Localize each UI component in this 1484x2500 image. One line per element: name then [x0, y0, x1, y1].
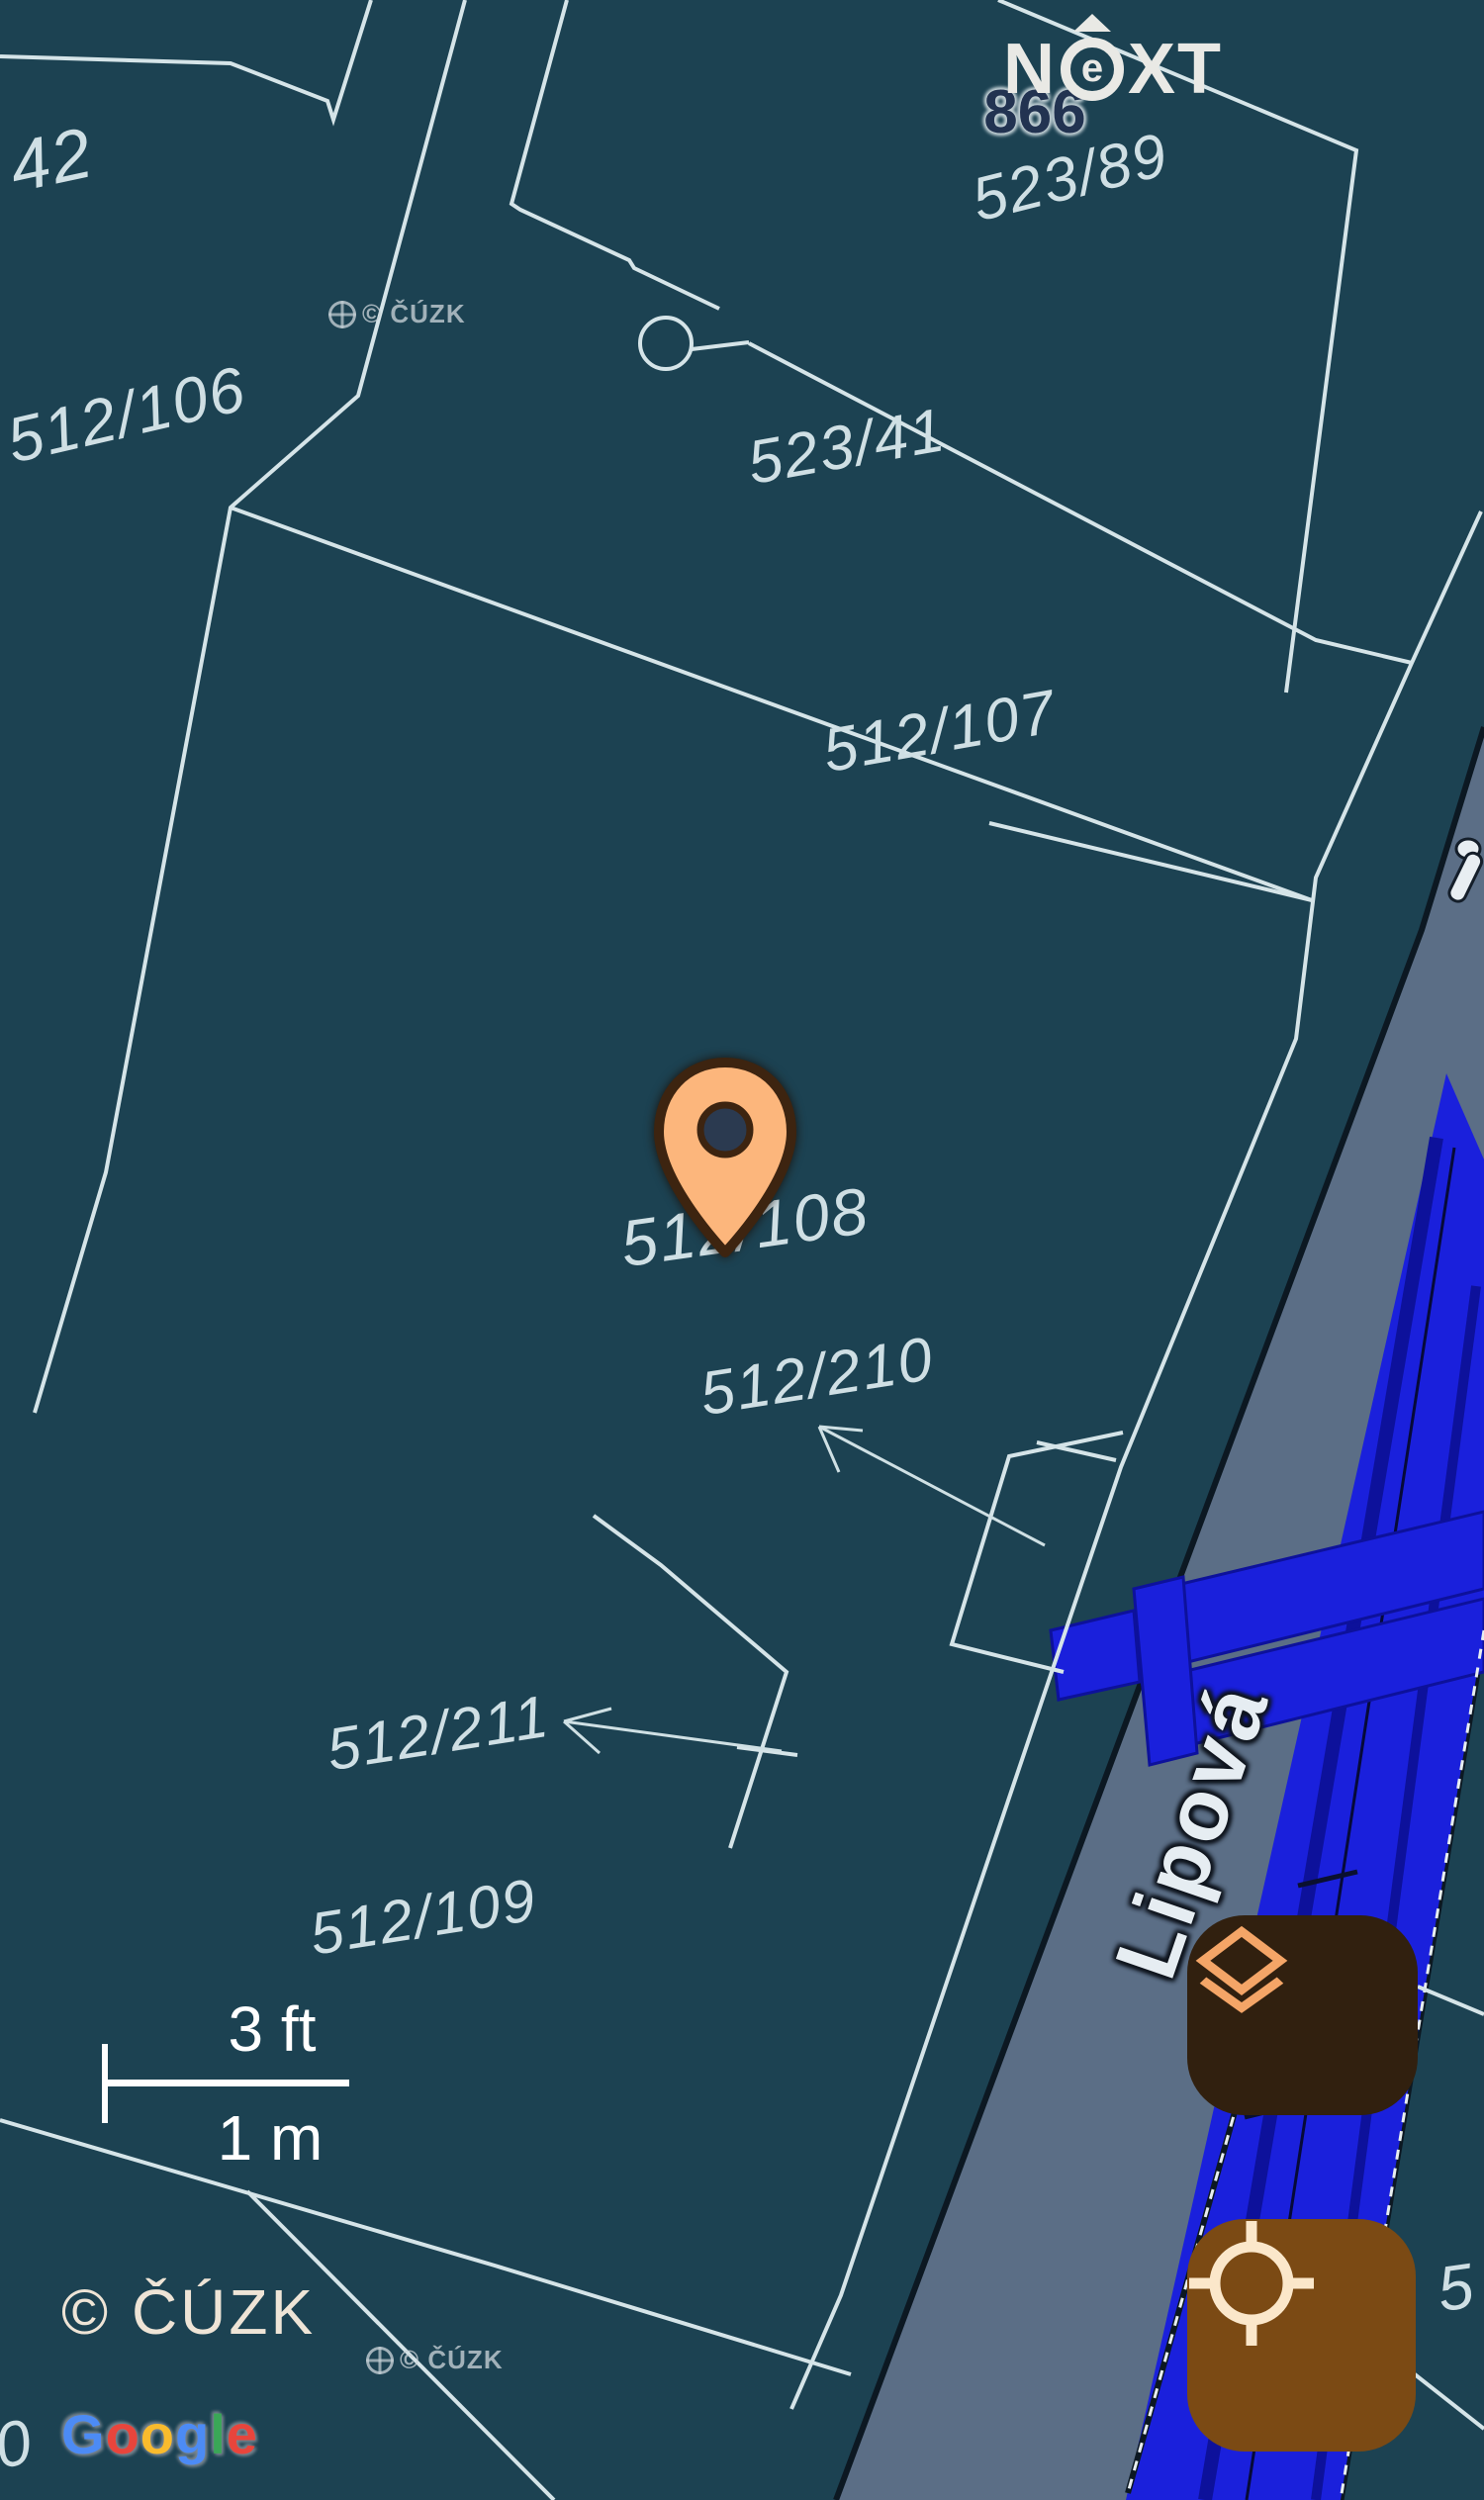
- logo-letters-xt: XT: [1128, 34, 1223, 105]
- well-circle-symbol: [640, 318, 692, 369]
- leader-arrows: [564, 1427, 1045, 1753]
- cuzk-watermark: © ČÚZK: [328, 299, 466, 329]
- logo-letter-e: e: [1081, 48, 1103, 88]
- logo-e-ring: e: [1061, 38, 1124, 101]
- globe-icon: [366, 2347, 394, 2374]
- google-letter: o: [140, 2403, 175, 2465]
- layers-button[interactable]: [1187, 1915, 1418, 2115]
- cuzk-watermark: © ČÚZK: [366, 2345, 504, 2375]
- google-letter: e: [227, 2403, 258, 2465]
- parcel-label-42: 42: [3, 117, 99, 204]
- google-letter: o: [106, 2403, 140, 2465]
- logo-letter-n: N: [1003, 34, 1057, 105]
- cuzk-attribution: © ČÚZK: [61, 2275, 316, 2349]
- next-reality-logo: N e XT: [1003, 34, 1223, 105]
- map-canvas[interactable]: 42 512/106 523/89 523/41 512/107 512/108…: [0, 0, 1484, 2500]
- highlight-junction-stub: [1051, 1611, 1140, 1700]
- scale-bar-line: [102, 2080, 349, 2086]
- google-logo[interactable]: Google: [61, 2402, 258, 2466]
- my-location-button[interactable]: [1187, 2219, 1416, 2452]
- google-letter: l: [210, 2403, 227, 2465]
- scale-label-metric: 1 m: [218, 2106, 324, 2170]
- google-letter: G: [61, 2403, 106, 2465]
- logo-caret-icon: [1073, 14, 1111, 32]
- cuzk-watermark-text: © ČÚZK: [400, 2345, 504, 2375]
- pin-hole: [700, 1105, 750, 1155]
- crosshair-icon: [1187, 2219, 1316, 2348]
- layers-icon: [1187, 1915, 1296, 2024]
- scale-label-imperial: 3 ft: [229, 1997, 317, 2061]
- globe-icon: [328, 301, 356, 328]
- google-letter: g: [175, 2403, 210, 2465]
- cuzk-watermark-text: © ČÚZK: [362, 299, 466, 329]
